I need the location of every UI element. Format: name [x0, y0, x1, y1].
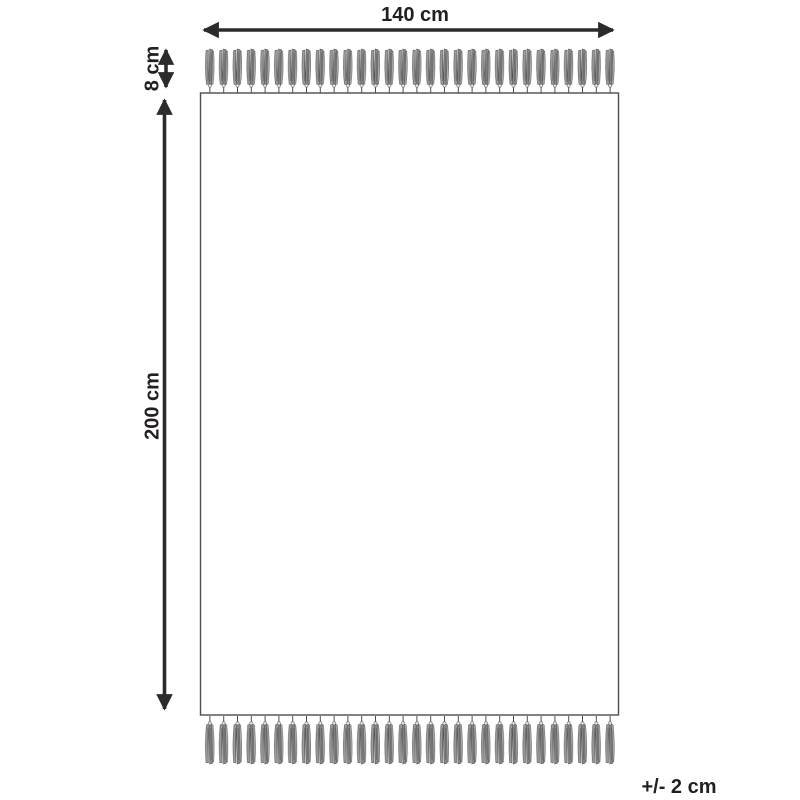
tolerance-label: +/- 2 cm [641, 776, 716, 798]
top-fringe-tassels [201, 47, 617, 93]
bottom-fringe-tassels [201, 716, 617, 766]
dimension-diagram: 140 cm 8 cm 200 cm +/- 2 cm [0, 0, 800, 800]
fringe-height-dimension-label: 8 cm [142, 46, 164, 92]
width-dimension-label: 140 cm [381, 4, 449, 26]
rug-dimension-drawing: 140 cm 8 cm 200 cm +/- 2 cm [0, 0, 800, 800]
rug-outline [201, 93, 619, 715]
length-dimension-label: 200 cm [142, 372, 164, 440]
